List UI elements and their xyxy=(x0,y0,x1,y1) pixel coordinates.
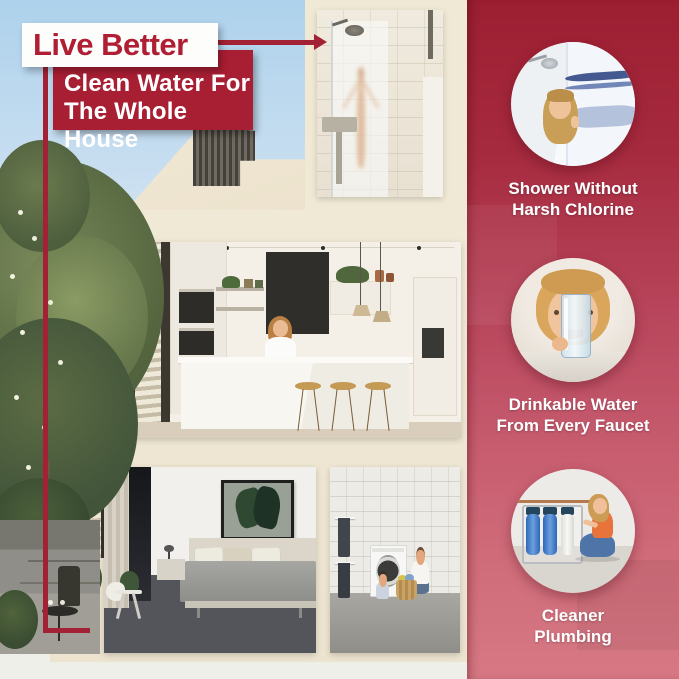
feature-shower: Shower Without Harsh Chlorine xyxy=(467,42,679,220)
wall-oven-lower xyxy=(179,328,214,355)
photo-shower-curtain-woman xyxy=(511,42,635,166)
pendant-cord xyxy=(380,242,381,311)
woman-bangs xyxy=(541,269,605,295)
red-connector-line-vertical xyxy=(43,58,48,633)
stool-leg xyxy=(367,389,373,431)
pendant-cord xyxy=(360,242,361,305)
house-cutaway-scene: Clean Water For The Whole House Live Bet… xyxy=(0,0,467,679)
bar-stool xyxy=(330,382,356,431)
woman-bangs xyxy=(547,89,574,101)
red-connector-line-top xyxy=(205,40,316,45)
caption-line-1: Drinkable Water xyxy=(509,395,638,414)
subtitle-line-2: The Whole House xyxy=(64,98,253,154)
curtain-stripe xyxy=(565,69,635,82)
poster-title: Live Better xyxy=(33,27,188,63)
woman-face xyxy=(273,320,288,337)
nightstand xyxy=(157,559,185,579)
stool-leg xyxy=(383,389,389,431)
silhouette-body xyxy=(357,82,365,168)
product-poster: Clean Water For The Whole House Live Bet… xyxy=(0,0,679,679)
caption-line-2: Plumbing xyxy=(534,627,611,646)
framed-botanical-art xyxy=(221,480,295,540)
stool-leg xyxy=(313,389,319,431)
white-filter-canister xyxy=(561,514,575,555)
ceiling-downlight xyxy=(417,246,421,250)
sink-pedestal xyxy=(336,132,342,184)
washer-control-panel xyxy=(372,548,405,552)
bathroom-wall-shadow xyxy=(428,10,433,59)
laundry-floor xyxy=(330,593,460,653)
stool-leg xyxy=(348,389,354,431)
stool-leg xyxy=(332,389,338,431)
stool-seat xyxy=(365,382,391,390)
hanging-towel xyxy=(338,518,350,557)
hanging-towel xyxy=(338,563,350,598)
bar-stool xyxy=(365,382,391,431)
photo-woman-with-glass xyxy=(511,258,635,382)
patio-step xyxy=(28,560,100,562)
wall-oven xyxy=(179,289,214,323)
father-head xyxy=(416,547,424,565)
bathroom-light-column xyxy=(423,77,443,197)
feature-caption: Cleaner Plumbing xyxy=(534,605,611,647)
scene-bedroom xyxy=(104,467,316,653)
stool-leg xyxy=(297,389,303,431)
stool-seat xyxy=(295,382,321,390)
bed-leg xyxy=(299,608,302,617)
bed-duvet xyxy=(180,561,316,602)
red-connector-line-bottom xyxy=(43,628,90,633)
blue-filter-canister xyxy=(526,514,540,555)
photo-filter-system-woman xyxy=(511,469,635,593)
louver-mullion xyxy=(161,242,170,438)
feature-caption: Shower Without Harsh Chlorine xyxy=(508,178,637,220)
subtitle-line-1: Clean Water For xyxy=(64,70,253,98)
terracotta-vase xyxy=(386,273,394,282)
cabinet-top-plant xyxy=(336,266,369,284)
blue-filter-canister xyxy=(543,514,557,555)
open-shelf xyxy=(216,307,264,311)
bar-stool xyxy=(295,382,321,431)
title-banner: Live Better xyxy=(22,23,218,67)
scene-laundry-room xyxy=(330,467,460,653)
bathroom-sink xyxy=(322,117,357,132)
scene-shower-bathroom xyxy=(317,10,443,197)
stool-seat xyxy=(330,382,356,390)
ceiling-downlight xyxy=(321,246,325,250)
curtain-stripe xyxy=(565,80,635,90)
caption-line-2: Harsh Chlorine xyxy=(512,200,634,219)
tree-blossoms xyxy=(18,210,23,215)
red-connector-arrow xyxy=(314,34,327,50)
caption-line-1: Shower Without xyxy=(508,179,637,198)
fridge-water-dispenser xyxy=(422,328,444,357)
coffee-cup xyxy=(48,600,53,605)
bed-leg xyxy=(197,608,200,617)
bed-base xyxy=(185,601,316,608)
table-lamp-shade xyxy=(164,545,174,552)
feature-drinking-water: Drinkable Water From Every Faucet xyxy=(467,258,679,436)
woman-hand xyxy=(571,116,580,127)
wicker-laundry-basket xyxy=(396,580,417,600)
shelf-jar xyxy=(255,280,263,288)
rain-shower-head xyxy=(345,25,364,36)
woman-hand xyxy=(552,337,568,351)
shelf-jar xyxy=(244,279,253,288)
scene-garden-patio xyxy=(0,520,100,654)
feature-caption: Drinkable Water From Every Faucet xyxy=(496,394,649,436)
feature-cleaner-plumbing: Cleaner Plumbing xyxy=(467,469,679,647)
hairpin-side-table xyxy=(115,590,143,595)
copper-pipe xyxy=(516,500,598,503)
benefits-panel: Shower Without Harsh Chlorine Drinkable … xyxy=(467,0,679,679)
caption-line-1: Cleaner xyxy=(542,606,604,625)
shelf-plant xyxy=(222,276,240,288)
caption-line-2: From Every Faucet xyxy=(496,416,649,435)
patio-plant xyxy=(0,590,38,649)
shower-head xyxy=(541,58,558,69)
child-head xyxy=(379,571,386,587)
